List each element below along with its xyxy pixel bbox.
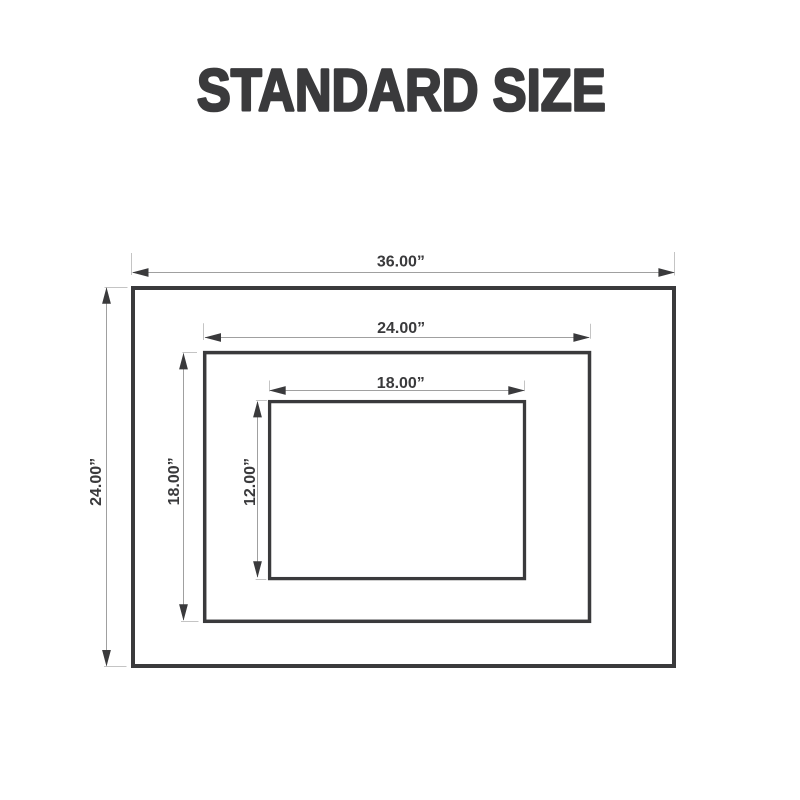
svg-text:18.00”: 18.00” <box>166 457 183 505</box>
svg-text:18.00”: 18.00” <box>377 375 425 392</box>
svg-text:24.00”: 24.00” <box>88 458 105 506</box>
svg-text:36.00”: 36.00” <box>377 254 425 271</box>
svg-text:12.00”: 12.00” <box>242 458 259 506</box>
svg-text:24.00”: 24.00” <box>377 320 425 337</box>
svg-text:STANDARD SIZE: STANDARD SIZE <box>197 56 606 123</box>
